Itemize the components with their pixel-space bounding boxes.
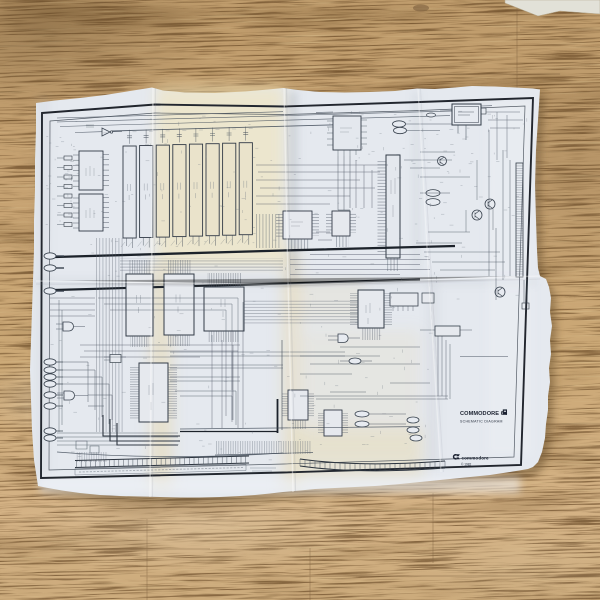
- svg-text:SCHEMATIC DIAGRAM: SCHEMATIC DIAGRAM: [460, 420, 503, 424]
- svg-text:COMMODORE 64: COMMODORE 64: [460, 411, 508, 417]
- svg-text:© 1982: © 1982: [461, 463, 472, 467]
- svg-text:commodore: commodore: [462, 455, 490, 460]
